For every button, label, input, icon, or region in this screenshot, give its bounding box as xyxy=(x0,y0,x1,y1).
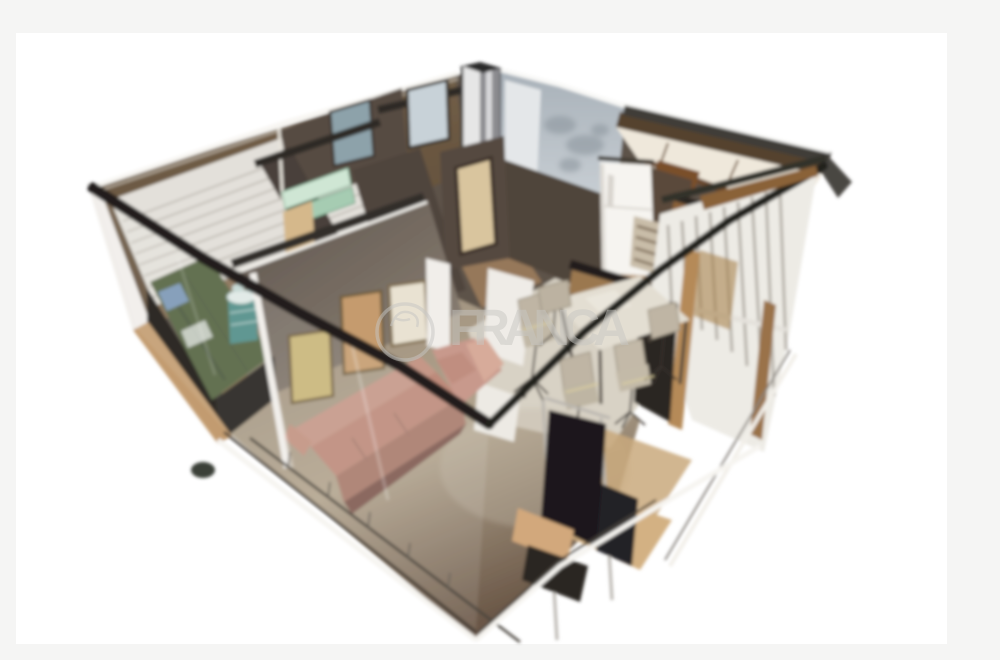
svg-text:FRANCA: FRANCA xyxy=(449,299,630,356)
